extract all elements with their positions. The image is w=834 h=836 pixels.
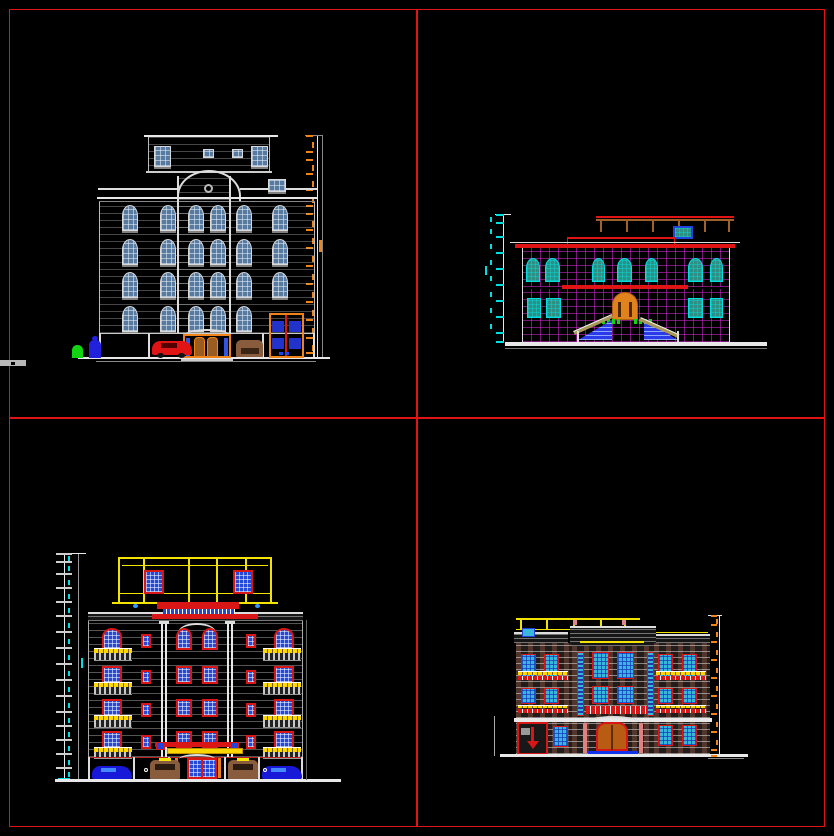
window [154, 146, 171, 167]
cornice-right [652, 634, 710, 643]
window [210, 239, 226, 265]
window [160, 306, 176, 332]
window [251, 146, 268, 167]
canopy-cap [156, 742, 165, 750]
window [188, 272, 204, 298]
window [272, 272, 288, 298]
balcony-band [518, 676, 568, 680]
ground-line-2 [96, 361, 316, 362]
door-slit [629, 302, 632, 317]
entrance-canopy-band [155, 742, 239, 747]
balcony-rail [94, 720, 132, 728]
entrance-column [639, 723, 643, 753]
finial-dot [133, 604, 138, 608]
column [227, 624, 233, 757]
window [122, 205, 138, 231]
suv-windshield [155, 764, 175, 770]
facade-edge [729, 248, 730, 342]
window [176, 666, 192, 684]
person-green [72, 345, 83, 358]
center-balcony [586, 706, 648, 714]
window [160, 272, 176, 298]
symbol-mark [144, 768, 148, 772]
window [246, 735, 256, 749]
window [210, 205, 226, 231]
ground-line-2 [505, 348, 767, 349]
boundary-line [494, 716, 495, 756]
window [202, 666, 218, 684]
border-tick-dot [11, 362, 15, 365]
window [272, 205, 288, 231]
person-blue [89, 340, 101, 358]
pergola-post [600, 221, 602, 232]
car-brown-grille [241, 348, 259, 354]
pergola-post [546, 618, 548, 629]
stair-post [577, 331, 579, 342]
window [545, 258, 560, 282]
entrance-column [583, 723, 587, 753]
window [160, 205, 176, 231]
window [141, 703, 151, 717]
window [645, 258, 658, 282]
window [202, 699, 218, 717]
window [188, 205, 204, 231]
facade-edge [522, 248, 523, 342]
balcony [656, 671, 706, 675]
window [176, 699, 192, 717]
window [160, 239, 176, 265]
pergola-post [652, 221, 654, 232]
window [527, 298, 541, 318]
suv-roof-sign [159, 758, 171, 761]
garage-panel [289, 338, 301, 349]
projection-line [306, 620, 307, 780]
window [246, 703, 256, 717]
floor-band [562, 285, 688, 289]
window [521, 688, 536, 704]
window [176, 628, 192, 650]
balcony-rail [263, 687, 301, 695]
balcony-band [518, 709, 568, 713]
car-blue-window [271, 768, 286, 772]
window [210, 272, 226, 298]
roof-window [522, 628, 535, 637]
pier [313, 333, 315, 357]
door-slit [618, 302, 621, 317]
window [236, 272, 252, 298]
window [232, 149, 243, 158]
symbol-mark [263, 768, 267, 772]
dimension-chain [708, 615, 709, 616]
ground-line [55, 779, 341, 782]
window [122, 306, 138, 332]
cornice-center [570, 626, 656, 646]
window [553, 726, 568, 747]
attic-post [188, 557, 190, 603]
dimension-chain [56, 553, 57, 554]
car-blue-window [101, 768, 116, 772]
window [274, 628, 294, 650]
ramp-gate-panel [521, 728, 530, 735]
down-arrow-stem [531, 727, 534, 741]
stair-post [677, 331, 679, 342]
pier [148, 333, 150, 357]
window [658, 725, 673, 746]
pergola-beam [596, 216, 734, 218]
garage-panel [272, 338, 284, 349]
parapet-line [567, 237, 675, 239]
window [688, 258, 703, 282]
window [141, 634, 151, 648]
window [710, 298, 723, 318]
roof-window [673, 226, 693, 239]
entrance-door [612, 292, 638, 320]
suv-windshield [233, 764, 253, 770]
window [272, 239, 288, 265]
garage-mark [279, 352, 283, 355]
window [592, 686, 609, 704]
crown-block [157, 602, 239, 609]
window [102, 628, 122, 650]
window [592, 258, 605, 282]
attic-post [118, 557, 120, 603]
window [202, 628, 218, 650]
window [617, 258, 632, 282]
window [682, 725, 697, 746]
dimension-chain [305, 135, 306, 136]
entrance-door [207, 337, 218, 357]
balcony [518, 671, 568, 675]
window [210, 306, 226, 332]
balcony-band [656, 709, 706, 713]
finial-dot [255, 604, 260, 608]
window [236, 205, 252, 231]
balcony-rail [94, 687, 132, 695]
window [246, 670, 256, 684]
garage-panel [289, 321, 301, 332]
car-red-wheel [178, 353, 185, 358]
pier [224, 757, 226, 779]
column [161, 624, 167, 757]
pier [133, 757, 135, 779]
suv-roof-sign [237, 758, 249, 761]
window [268, 179, 286, 192]
pergola-post [704, 221, 706, 232]
window [658, 688, 673, 704]
roof-ornament [622, 620, 626, 625]
balcony [656, 705, 706, 708]
balcony-rail [263, 720, 301, 728]
side-cornice-left [98, 188, 178, 190]
pier [258, 757, 260, 779]
window [617, 652, 634, 679]
window [236, 239, 252, 265]
balcony-rail [94, 653, 132, 661]
ground-line [505, 342, 767, 346]
garage-panel [272, 321, 284, 332]
window [710, 258, 723, 282]
attic-post [216, 557, 218, 603]
pergola-post [626, 221, 628, 232]
entrance-sidelight [224, 338, 228, 356]
window [122, 272, 138, 298]
attic-line [118, 557, 272, 559]
louver-column [647, 652, 654, 716]
balcony-band [656, 676, 706, 680]
car-red-window [161, 343, 177, 348]
window [144, 570, 164, 594]
window [246, 634, 256, 648]
balcony [518, 705, 568, 708]
balcony-rail [263, 653, 301, 661]
window [236, 306, 252, 332]
entrance-post [218, 758, 221, 778]
window [546, 298, 561, 318]
entrance-step [181, 359, 233, 361]
window [617, 686, 634, 704]
window [141, 735, 151, 749]
pier [88, 757, 90, 779]
entrance-door [194, 337, 205, 357]
cornice-stripe [580, 641, 644, 643]
ground-line-2 [708, 758, 744, 759]
window [544, 688, 559, 704]
door-divider [611, 725, 613, 750]
attic-post [270, 557, 272, 603]
crown-band [152, 614, 258, 619]
window [592, 652, 609, 679]
pergola-beam-wood [596, 219, 734, 221]
louver-column [577, 652, 584, 716]
window [122, 239, 138, 265]
dimension-chain [485, 214, 486, 215]
car-red-wheel [157, 353, 164, 358]
door-divider [201, 759, 203, 778]
cad-canvas[interactable] [0, 0, 834, 836]
garage-mark [286, 352, 289, 355]
roof-ornament [573, 620, 577, 625]
red-divider-horizontal [10, 417, 824, 419]
garage-divider [285, 315, 287, 356]
window [188, 306, 204, 332]
window [682, 688, 697, 704]
window [688, 298, 703, 318]
pergola-post [728, 221, 730, 232]
window [526, 258, 540, 282]
window [141, 670, 151, 684]
window [203, 149, 214, 158]
window [188, 239, 204, 265]
entrance-canopy [167, 748, 243, 754]
roof-overhang [510, 242, 740, 243]
window [233, 570, 253, 594]
down-arrow-head [527, 741, 539, 749]
